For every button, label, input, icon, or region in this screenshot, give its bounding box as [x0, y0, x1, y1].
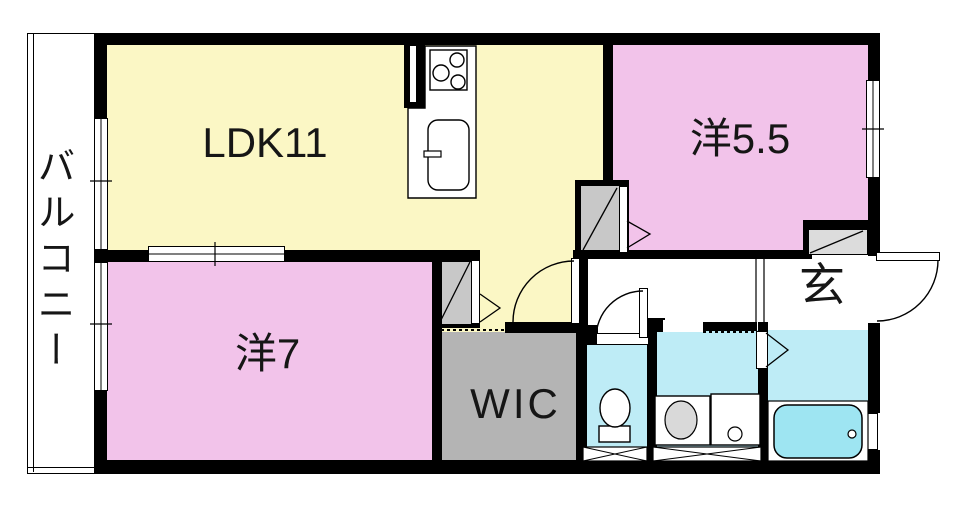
wic-label: WIC	[453, 383, 578, 425]
ldk-label: LDK11	[175, 122, 355, 164]
wall-left-1	[95, 33, 107, 118]
bathroom-floor	[768, 330, 868, 463]
kitchen-stub-slit	[410, 46, 416, 102]
wall-top	[95, 33, 880, 45]
door-leaf-toilet	[639, 288, 648, 338]
balcony-inner-line-bottom	[28, 467, 94, 468]
wall-7-east	[432, 258, 442, 460]
shoe-cabinet	[808, 229, 868, 255]
sliding-door-ldk-bedroom7	[148, 246, 285, 262]
bedroom-7-label: 洋7	[195, 333, 340, 375]
washroom-opening	[663, 320, 703, 332]
door-leaf-ldk	[571, 258, 580, 324]
wall-toilet-washroom	[647, 330, 657, 460]
x-window-washroom	[653, 447, 761, 461]
wall-right-1	[868, 33, 880, 82]
closet-7-fill	[438, 260, 472, 324]
window-bedroom55-east	[866, 80, 880, 178]
closet-55-fill	[581, 186, 619, 253]
door-bathroom-strip	[756, 331, 768, 369]
wall-ldk-7-left	[98, 250, 150, 262]
window-ldk-balcony	[94, 118, 108, 250]
wall-hall-top	[573, 250, 812, 259]
closet-55-door	[619, 186, 628, 253]
window-bathroom-east	[866, 413, 878, 450]
bedroom-55-label: 洋5.5	[660, 118, 820, 160]
door-leaf-entrance	[876, 252, 940, 261]
wall-right-3	[868, 323, 880, 413]
entrance-label: 玄	[796, 262, 848, 308]
floor-plan: LDK11 洋5.5 洋7 WIC 玄 バルコニー	[0, 0, 953, 521]
washroom-floor	[653, 330, 760, 447]
wall-right-4	[868, 450, 880, 472]
x-window-toilet	[583, 447, 647, 461]
wall-right-2	[868, 178, 880, 256]
toilet-floor	[587, 343, 647, 447]
wall-ldk-7-right	[283, 250, 480, 262]
closet-7-door	[471, 260, 480, 324]
wall-left-3	[95, 391, 107, 472]
balcony-label: バルコニー	[33, 126, 71, 396]
wall-ldk-55	[603, 45, 613, 182]
window-bedroom7-balcony	[94, 262, 108, 391]
door-arc-entrance	[877, 260, 938, 321]
wall-washroom-top	[703, 322, 757, 331]
door-arc-toilet	[596, 291, 643, 338]
